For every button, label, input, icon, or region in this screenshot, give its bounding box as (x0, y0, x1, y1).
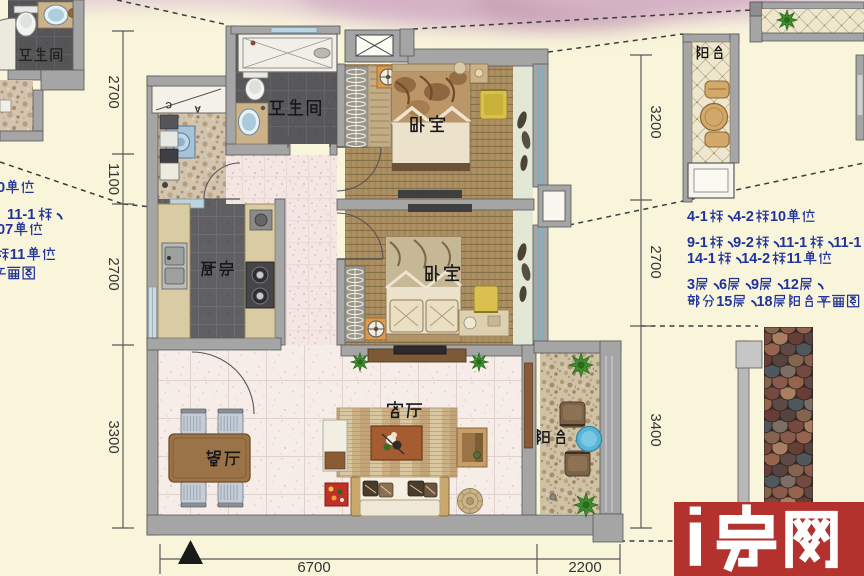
svg-text:6700: 6700 (297, 559, 330, 576)
svg-text:A: A (194, 104, 201, 114)
svg-text:11: 11 (787, 251, 802, 267)
svg-text:11: 11 (10, 247, 25, 263)
svg-text:9: 9 (751, 277, 759, 293)
svg-text:12: 12 (783, 277, 799, 293)
svg-text:3300: 3300 (105, 420, 122, 453)
svg-text:4-2: 4-2 (733, 209, 754, 225)
svg-text:9-1: 9-1 (687, 235, 708, 251)
svg-text:2700: 2700 (647, 245, 664, 278)
svg-text:15: 15 (716, 294, 732, 310)
svg-text:9-2: 9-2 (733, 235, 754, 251)
svg-text:14-1: 14-1 (687, 251, 716, 267)
svg-text:4-1: 4-1 (687, 209, 708, 225)
svg-text:1100: 1100 (105, 163, 122, 195)
svg-text:14-2: 14-2 (741, 251, 770, 267)
svg-text:11-1: 11-1 (833, 235, 861, 251)
svg-text:6: 6 (719, 277, 727, 293)
svg-text:2200: 2200 (568, 559, 601, 576)
svg-text:3400: 3400 (647, 413, 664, 446)
svg-text:11-1: 11-1 (7, 207, 35, 223)
svg-text:2700: 2700 (105, 75, 122, 108)
svg-text:11-1: 11-1 (779, 235, 807, 251)
svg-text:3: 3 (687, 277, 695, 293)
svg-text:C: C (165, 100, 172, 110)
svg-text:3200: 3200 (647, 105, 664, 138)
svg-text:2700: 2700 (105, 257, 122, 290)
svg-text:i: i (684, 493, 707, 576)
svg-text:07: 07 (0, 222, 13, 238)
svg-text:18: 18 (757, 294, 773, 310)
svg-text:10: 10 (770, 209, 786, 225)
svg-text:0: 0 (0, 180, 5, 196)
